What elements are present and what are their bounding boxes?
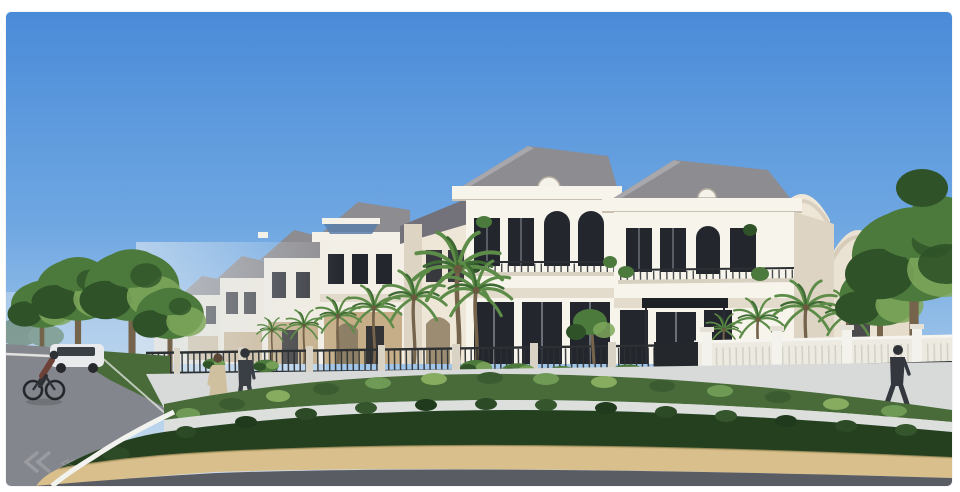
- villa-scene: ≪: [6, 12, 952, 486]
- entrance-canopy: [642, 298, 728, 308]
- photo-frame: ≪: [0, 0, 960, 492]
- watermark-glyph: ≪: [60, 454, 78, 472]
- architectural-render-photo: ≪: [6, 12, 952, 486]
